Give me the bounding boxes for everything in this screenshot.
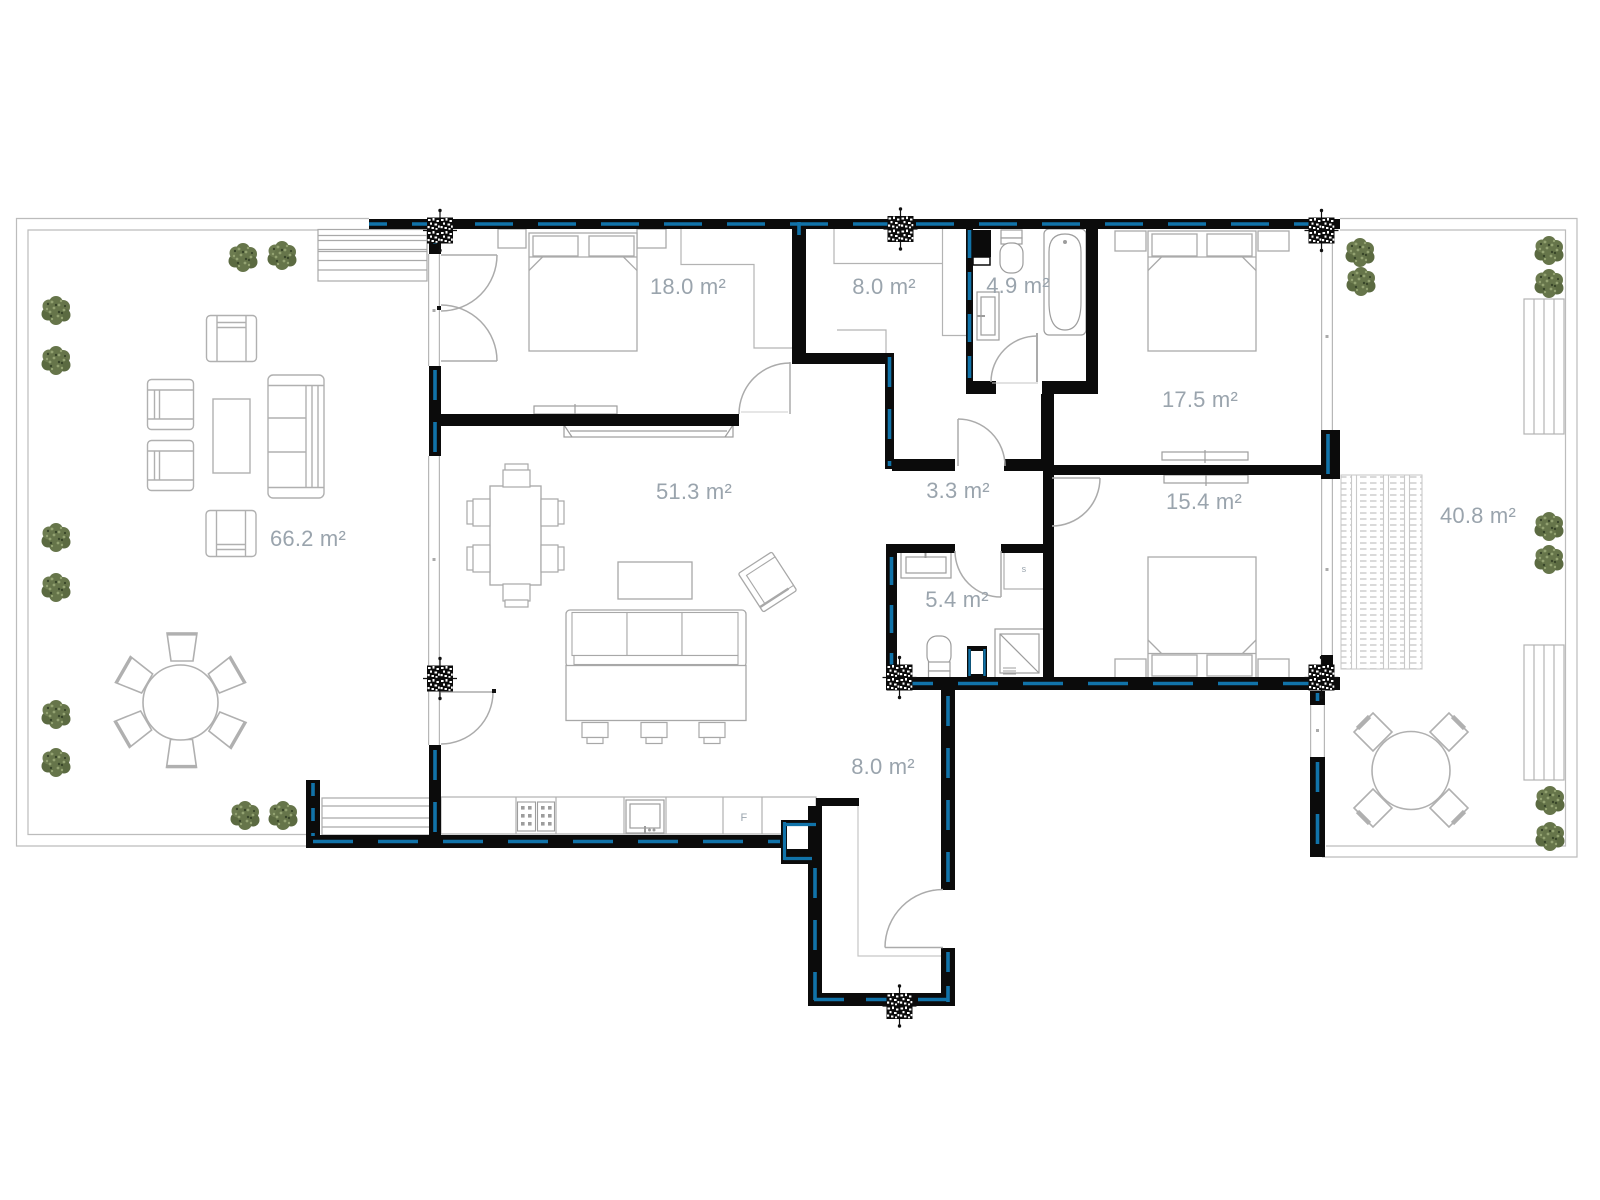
svg-text:3.3 m²: 3.3 m² [926, 478, 990, 503]
svg-text:17.5 m²: 17.5 m² [1162, 387, 1238, 412]
svg-text:F: F [741, 812, 748, 824]
svg-text:8.0 m²: 8.0 m² [852, 274, 916, 299]
svg-text:51.3 m²: 51.3 m² [656, 479, 732, 504]
svg-text:5.4 m²: 5.4 m² [925, 587, 989, 612]
svg-text:66.2 m²: 66.2 m² [270, 526, 346, 551]
svg-text:8.0 m²: 8.0 m² [851, 754, 915, 779]
svg-text:18.0 m²: 18.0 m² [650, 274, 726, 299]
svg-text:4.9 m²: 4.9 m² [986, 273, 1050, 298]
svg-text:15.4 m²: 15.4 m² [1166, 489, 1242, 514]
svg-text:40.8 m²: 40.8 m² [1440, 503, 1516, 528]
svg-text:s: s [1022, 564, 1027, 574]
